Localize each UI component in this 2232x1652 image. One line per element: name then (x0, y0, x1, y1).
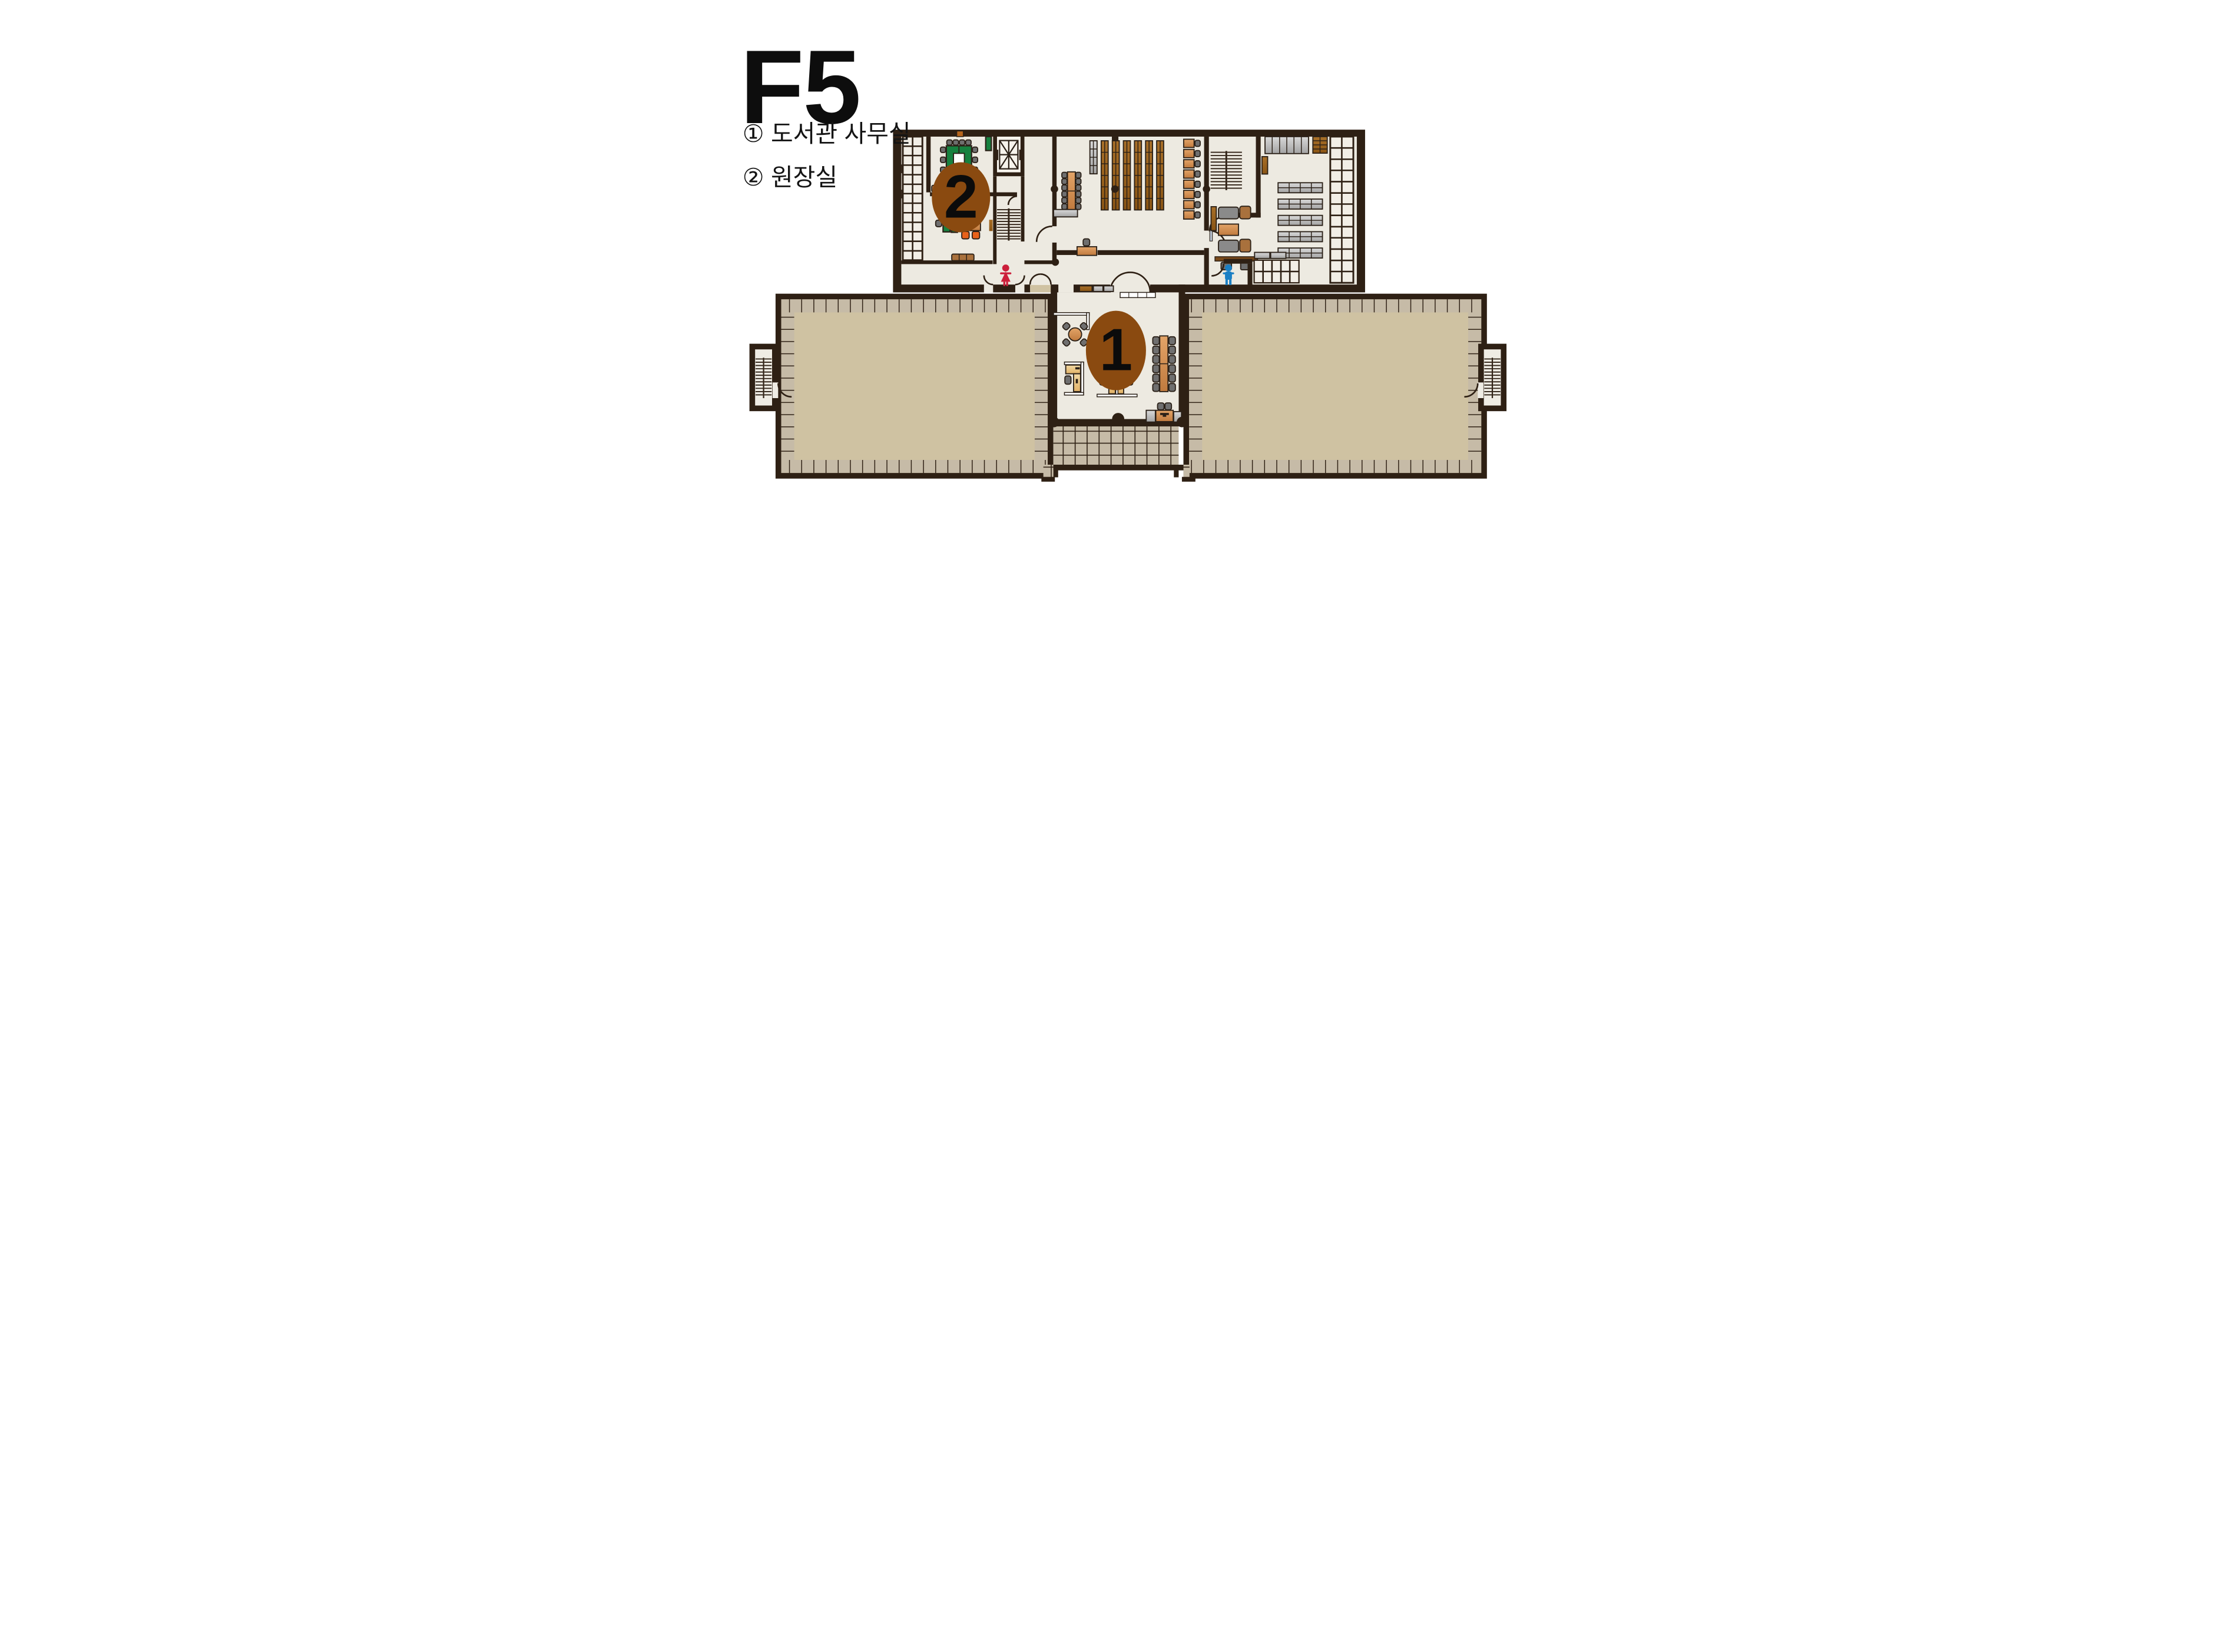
right-roof-deck (1202, 312, 1468, 459)
lockers (1313, 137, 1327, 153)
counter-strip (1120, 292, 1155, 297)
wall-shelf (1271, 252, 1286, 258)
marker-2-number: 2 (944, 162, 978, 232)
legend-item-2: ② 원장실 (743, 157, 911, 193)
wall-shelf (1262, 157, 1268, 174)
bookshelf-icon (1090, 141, 1164, 210)
courtyard (1041, 426, 1196, 482)
marker-2: 2 (932, 162, 990, 232)
elevator (993, 133, 1024, 176)
east-window-bay (1330, 137, 1353, 283)
wall-shelf (1254, 252, 1270, 258)
bench (952, 254, 974, 260)
marker-1: 1 (1086, 310, 1146, 390)
elevator-icon (996, 141, 1022, 169)
left-roof-deck (794, 312, 1035, 459)
sofa-icon (1218, 207, 1238, 219)
reading-table (1062, 172, 1081, 210)
right-terrace (1184, 294, 1487, 479)
marker-1-number: 1 (1100, 316, 1132, 384)
table-grid-block (1254, 260, 1299, 283)
office-meeting-table (1153, 336, 1175, 392)
green-cabinet (986, 137, 992, 151)
left-terrace (776, 294, 1054, 479)
gray-shelving (1265, 137, 1309, 154)
wall-shelf (989, 220, 993, 231)
low-cabinet (1054, 210, 1078, 217)
legend: ① 도서관 사무실 ② 원장실 (743, 114, 911, 193)
floor-plan-page: 1 2 F5 ① 도서관 사무실 ② 원장실 (704, 0, 1528, 610)
north-door (957, 131, 963, 137)
legend-item-1: ① 도서관 사무실 (743, 114, 911, 149)
